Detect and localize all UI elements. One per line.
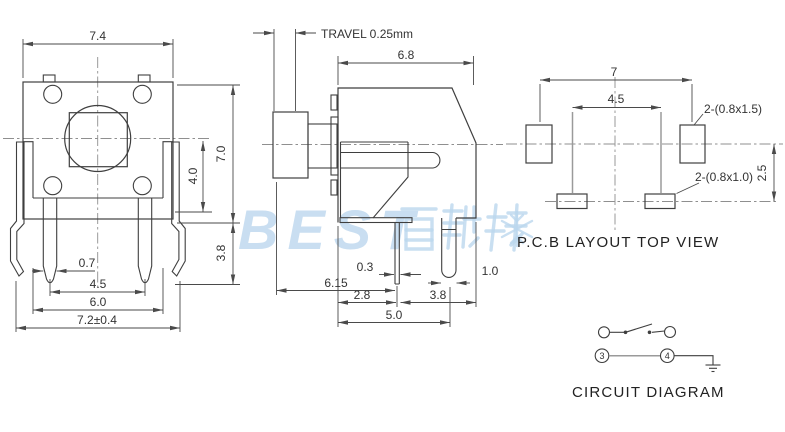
watermark: BEST bbox=[238, 198, 532, 261]
corner-rivet-bottom-right bbox=[133, 177, 151, 195]
top-tab-right bbox=[138, 75, 150, 82]
switch-contact-dot bbox=[648, 331, 652, 335]
left-mounting-clip bbox=[11, 142, 25, 276]
pcb-caption: P.C.B LAYOUT bbox=[517, 234, 632, 251]
travel-label: TRAVEL 0.25mm bbox=[321, 27, 413, 41]
front-extension-lines bbox=[16, 39, 240, 332]
dim-front-pin-width: 0.7 bbox=[79, 256, 96, 270]
technical-drawing-page: BEST bbox=[0, 0, 785, 432]
circuit-caption: CIRCUIT DIAGRAM bbox=[572, 384, 725, 401]
right-mounting-clip bbox=[172, 142, 186, 276]
corner-rivet-bottom-left bbox=[44, 177, 62, 195]
side-view: TRAVEL 0.25mm bbox=[253, 27, 503, 327]
button-square bbox=[69, 113, 127, 167]
dim-side-button-to-pin: 6.15 bbox=[324, 276, 348, 290]
switch-arm bbox=[626, 324, 653, 332]
top-tab-left bbox=[43, 75, 55, 82]
ground-lead bbox=[674, 356, 713, 365]
side-extension-lines bbox=[277, 56, 477, 327]
dim-side-face-to-pin: 2.8 bbox=[354, 288, 371, 302]
dim-front-pin-pitch: 4.5 bbox=[90, 277, 107, 291]
button-cap-side bbox=[273, 112, 308, 178]
switch-terminal-open-right bbox=[665, 327, 676, 338]
switch-terminal-open-left bbox=[599, 327, 610, 338]
dim-front-overall-width: 7.2±0.4 bbox=[77, 313, 117, 327]
label-inner-pads: 2-(0.8x1.0) bbox=[695, 170, 753, 184]
watermark-glyph-2 bbox=[444, 205, 480, 248]
dim-front-base-width: 6.0 bbox=[90, 295, 107, 309]
front-view: 7.4 7.0 4.0 3.8 0.7 4.5 6.0 7.2±0.4 bbox=[3, 29, 240, 332]
dim-pcb-row-offset: 2.5 bbox=[755, 164, 769, 181]
ground-symbol bbox=[706, 365, 721, 372]
dim-front-pin-drop: 3.8 bbox=[214, 244, 228, 261]
dim-pcb-outer-pitch: 7 bbox=[611, 65, 618, 79]
dim-side-pin-to-back: 3.8 bbox=[430, 288, 447, 302]
label-outer-pads: 2-(0.8x1.5) bbox=[704, 102, 762, 116]
terminal-4-label: 4 bbox=[665, 351, 670, 361]
dim-front-height: 7.0 bbox=[214, 145, 228, 162]
side-dimension-lines bbox=[277, 63, 477, 323]
dim-side-pin-span: 5.0 bbox=[386, 308, 403, 322]
dim-pcb-inner-pitch: 4.5 bbox=[608, 92, 625, 106]
front-pin-left bbox=[43, 198, 56, 283]
front-tab-lower bbox=[331, 180, 337, 195]
corner-rivet-top-left bbox=[44, 85, 62, 103]
front-pin-right bbox=[138, 198, 151, 283]
tact-switch-drawing: BEST bbox=[0, 0, 785, 432]
circuit-diagram: 3 4 CIRCUIT DIAGRAM bbox=[572, 324, 725, 401]
button-stem bbox=[308, 124, 337, 168]
top-view-caption: TOP VIEW bbox=[637, 234, 719, 251]
dim-side-back-pin-width: 1.0 bbox=[482, 264, 499, 278]
watermark-brand-text: BEST bbox=[238, 198, 423, 261]
corner-rivet-top-right bbox=[133, 85, 151, 103]
terminal-3-label: 3 bbox=[599, 351, 604, 361]
front-tab-upper bbox=[331, 95, 337, 110]
dim-front-width: 7.4 bbox=[89, 29, 106, 43]
pcb-layout-view: 7 4.5 2.5 2-(0.8x1.5) 2-(0.8x1.0) P.C.B … bbox=[506, 65, 783, 251]
dim-front-center-to-base: 4.0 bbox=[186, 167, 200, 184]
dim-side-body-depth: 6.8 bbox=[398, 48, 415, 62]
plunger-contact bbox=[341, 153, 440, 169]
dim-side-pin-thickness: 0.3 bbox=[357, 260, 374, 274]
